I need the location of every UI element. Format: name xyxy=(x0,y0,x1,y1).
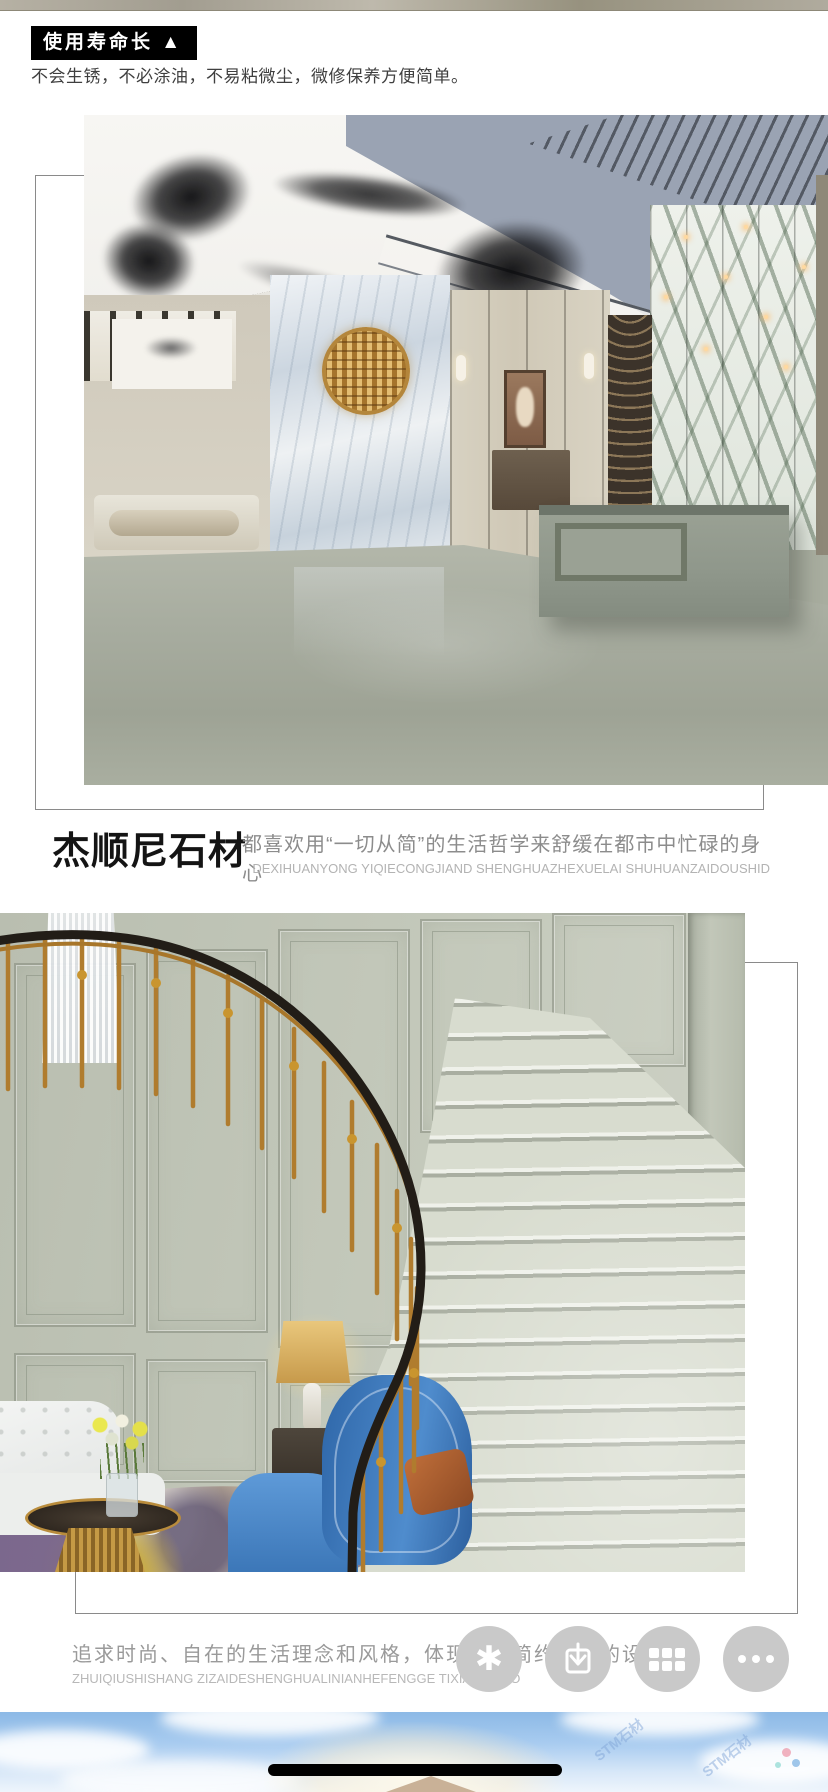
cloud xyxy=(560,1712,760,1736)
ceiling-spotlight xyxy=(724,275,728,279)
ceiling-spotlight xyxy=(664,295,668,299)
download-icon xyxy=(560,1641,596,1677)
gold-stair-railing xyxy=(0,913,745,1572)
brand-pinyin: DEXIHUANYONG YIQIECONGJIAND SHENGHUAZHEX… xyxy=(242,861,770,876)
ceiling-spotlight xyxy=(784,365,788,369)
wall-sconce xyxy=(584,353,594,379)
staircase-photo[interactable] xyxy=(0,913,745,1572)
ceiling-spotlight xyxy=(764,315,768,319)
ceiling-spotlight xyxy=(744,225,748,229)
lobby-photo[interactable] xyxy=(84,115,828,785)
floor-reflection xyxy=(294,567,444,657)
sun-glow xyxy=(264,1722,564,1792)
more-button[interactable] xyxy=(723,1626,789,1692)
apps-grid-button[interactable] xyxy=(634,1626,700,1692)
marble-slab-wall xyxy=(270,275,450,567)
apps-grid-icon xyxy=(649,1648,685,1671)
brand-description: 都喜欢用“一切从简”的生活哲学来舒缓在都市中忙碌的身心 xyxy=(242,828,770,886)
portrait-figure xyxy=(516,387,534,427)
wall-artwork-ink xyxy=(136,333,206,363)
wall-sconce xyxy=(456,355,466,381)
ceiling-spotlight xyxy=(684,235,688,239)
home-indicator[interactable] xyxy=(268,1764,562,1776)
watermark-dot xyxy=(775,1762,781,1768)
feature-description: 不会生锈，不必涂油，不易粘微尘，微修保养方便简单。 xyxy=(31,62,469,87)
previous-image-edge xyxy=(0,0,828,11)
more-icon xyxy=(738,1655,774,1663)
sideboard xyxy=(492,450,570,510)
watermark-dot xyxy=(792,1759,800,1767)
asterisk-button[interactable]: ✱ xyxy=(456,1626,522,1692)
feature-badge-label: 使用寿命长 ▲ xyxy=(43,32,183,53)
download-button[interactable] xyxy=(545,1626,611,1692)
gold-moon-gate-ornament xyxy=(322,327,410,415)
sky-banner: STM石材 STM石材 xyxy=(0,1712,828,1792)
bench-sculpture xyxy=(109,510,239,536)
footer-pinyin: ZHUIQIUSHISHANG ZIZAIDESHENGHUALINIANHEF… xyxy=(72,1671,520,1686)
marble-feature-wall-right xyxy=(650,205,828,550)
ceiling-spotlight xyxy=(802,265,806,269)
feature-badge: 使用寿命长 ▲ xyxy=(31,26,197,60)
asterisk-icon: ✱ xyxy=(475,1642,504,1676)
right-column xyxy=(816,175,828,555)
brand-title: 杰顺尼石材 xyxy=(52,820,247,875)
reception-desk xyxy=(539,505,789,617)
product-detail-page: 使用寿命长 ▲ 不会生锈，不必涂油，不易粘微尘，微修保养方便简单。 xyxy=(0,0,828,1792)
watermark-dot xyxy=(782,1748,791,1757)
ceiling-spotlight xyxy=(704,347,708,351)
